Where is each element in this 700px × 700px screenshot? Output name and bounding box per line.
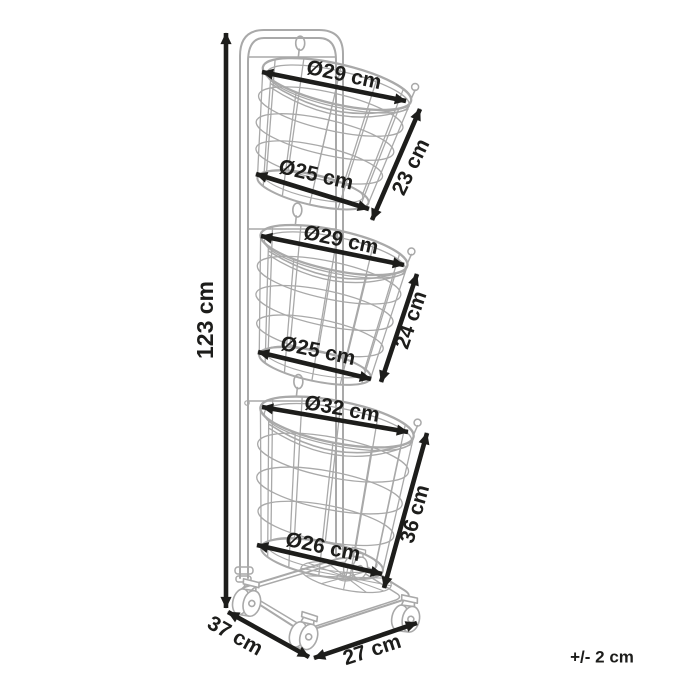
label-tolerance: +/- 2 cm: [570, 648, 634, 667]
basket-trolley-drawing: 123 cm Ø29 cm 23 cm Ø25 cm Ø29 cm 24 cm …: [0, 0, 700, 700]
label-overall-height: 123 cm: [192, 281, 218, 359]
product-dimension-diagram: 123 cm Ø29 cm 23 cm Ø25 cm Ø29 cm 24 cm …: [0, 0, 700, 700]
